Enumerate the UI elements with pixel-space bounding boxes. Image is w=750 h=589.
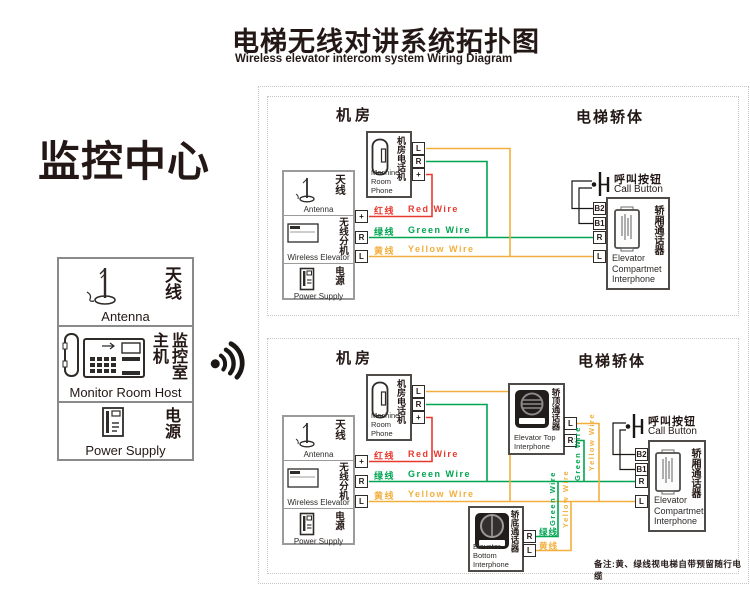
system2-interphone-terminal-l: L: [635, 495, 648, 508]
antenna-icon: [293, 419, 319, 449]
system1-interphone-terminal-l: L: [593, 250, 606, 263]
power-supply-icon: [299, 267, 315, 291]
system1-interphone-terminal-b1: B1: [593, 217, 606, 230]
system2-interphone-terminal-r: R: [635, 475, 648, 488]
system1-phone-terminal-r: R: [412, 155, 425, 168]
system1-elevator-car-label: 电梯轿体: [576, 106, 644, 127]
top-interphone-label-cn: 轿顶通话器: [550, 388, 560, 431]
bottom-interphone-label-en-1: Elevator Bottom: [473, 542, 522, 560]
system1-equipment-box: 天线 Antenna 无线分机 Wireless Elevator 电源 Pow…: [282, 170, 355, 300]
system2-wireless-terminal-l: L: [355, 495, 368, 508]
bottom-interphone-label-en-2: Interphone: [473, 560, 522, 569]
power-label-cn: 电源: [332, 511, 343, 530]
compartment-label-en-2: Compartmet: [612, 264, 662, 275]
system1-power-cell: 电源 Power Supply: [284, 263, 353, 302]
system1-compartment-interphone-box: 轿厢通话器 Elevator Compartmet Interphone: [606, 197, 670, 290]
bottom-interphone-terminal-r: R: [523, 530, 536, 543]
system1-red-wire-label: 红线Red Wire: [374, 204, 459, 217]
system1-phone-terminal-l: L: [412, 142, 425, 155]
power-supply-icon: [299, 512, 315, 536]
top-interphone-label-en-2: Interphone: [514, 442, 556, 451]
monitor-power-cell: 电源 Power Supply: [59, 401, 192, 459]
system1-call-button-label-en: Call Button: [614, 184, 663, 195]
system1-interphone-terminal-r: R: [593, 231, 606, 244]
system2-machine-room-phone-box: 机房电话机 Machine Room Phone: [366, 374, 412, 441]
compartment-label-en-3: Interphone: [612, 274, 662, 285]
system2-power-cell: 电源 Power Supply: [284, 508, 353, 547]
top-interphone-label-en-1: Elevator Top: [514, 433, 556, 442]
elevator-bottom-interphone-box: 轿底通话器 Elevator Bottom Interphone: [468, 506, 524, 572]
green-wire-vertical-label-1: Green Wire: [573, 426, 582, 481]
system2-antenna-cell: 天线 Antenna: [284, 417, 353, 460]
speaker-interphone-icon: [514, 389, 550, 429]
power-label-cn: 电源: [332, 266, 343, 285]
system2-wireless-terminal-plus: +: [355, 455, 368, 468]
system2-wireless-cell: 无线分机 Wireless Elevator: [284, 460, 353, 508]
power-label-en: Power Supply: [284, 537, 353, 546]
wireless-unit-icon: [287, 467, 319, 489]
monitor-host-label-en: Monitor Room Host: [59, 385, 192, 400]
monitor-power-label-en: Power Supply: [59, 443, 192, 458]
wireless-label-en: Wireless Elevator: [284, 498, 353, 507]
system2-yellow-wire-label: 黄线Yellow Wire: [374, 489, 474, 502]
system2-interphone-terminal-b2: B2: [635, 448, 648, 461]
interphone-icon: [613, 206, 641, 252]
wiring-diagram-page: 电梯无线对讲系统拓扑图 Wireless elevator intercom s…: [0, 0, 750, 589]
wireless-label-cn: 无线分机: [336, 217, 347, 255]
compartment-label-cn: 轿厢通话器: [689, 448, 700, 498]
system1-antenna-cell: 天线 Antenna: [284, 172, 353, 215]
power-label-en: Power Supply: [284, 292, 353, 301]
antenna-label-en: Antenna: [284, 205, 353, 214]
bottom-green-wire-label: 绿线: [539, 526, 558, 538]
system1-phone-terminal-plus: +: [412, 168, 425, 181]
system1-machine-room-label: 机房: [336, 104, 374, 125]
antenna-label-en: Antenna: [284, 450, 353, 459]
system2-equipment-box: 天线 Antenna 无线分机 Wireless Elevator 电源 Pow…: [282, 415, 355, 545]
system2-red-wire-label: 红线Red Wire: [374, 449, 459, 462]
compartment-label-cn: 轿厢通话器: [652, 205, 663, 255]
monitor-antenna-cell: 天线 Antenna: [59, 259, 192, 325]
monitor-center-title: 监控中心: [38, 128, 210, 189]
system1-wireless-terminal-r: R: [355, 231, 368, 244]
green-wire-vertical-label-2: Green Wire: [548, 471, 557, 526]
footnote: 备注:黄、绿线视电梯自带预留随行电缆: [594, 558, 750, 582]
system1-wireless-cell: 无线分机 Wireless Elevator: [284, 215, 353, 263]
system1-wireless-terminal-l: L: [355, 250, 368, 263]
wireless-label-cn: 无线分机: [336, 462, 347, 500]
system2-wireless-terminal-r: R: [355, 475, 368, 488]
antenna-label-cn: 天线: [333, 419, 345, 440]
system2-call-button-label-en: Call Button: [648, 426, 697, 437]
machine-phone-label-en-1: Machine: [371, 411, 410, 420]
monitor-host-label-cn: 监控室主机: [149, 332, 187, 388]
elevator-top-interphone-box: 轿顶通话器 Elevator Top Interphone: [508, 383, 565, 455]
system2-phone-terminal-plus: +: [412, 411, 425, 424]
compartment-label-en-1: Elevator: [612, 253, 662, 264]
system1-green-wire-label: 绿线Green Wire: [374, 225, 471, 238]
system1-interphone-terminal-b2: B2: [593, 202, 606, 215]
antenna-icon: [293, 174, 319, 204]
desk-phone-icon: [62, 331, 148, 379]
system2-compartment-interphone-box: 轿厢通话器 Elevator Compartmet Interphone: [648, 440, 706, 532]
system1-wireless-terminal-plus: +: [355, 210, 368, 223]
wireless-unit-icon: [287, 222, 319, 244]
machine-phone-label-en-2: Room Phone: [371, 420, 410, 438]
antenna-label-cn: 天线: [333, 174, 345, 195]
antenna-icon: [81, 262, 125, 308]
wireless-signal-icon: [206, 336, 256, 386]
machine-phone-label-en-2: Room Phone: [371, 177, 410, 195]
system2-machine-room-label: 机房: [336, 347, 374, 368]
wireless-label-en: Wireless Elevator: [284, 253, 353, 262]
yellow-wire-vertical-label-2: Yellow Wire: [561, 470, 570, 528]
machine-phone-label-en-1: Machine: [371, 168, 410, 177]
system1-machine-room-phone-box: 机房电话机 Machine Room Phone: [366, 131, 412, 198]
compartment-label-en-1: Elevator: [654, 495, 704, 506]
system2-green-wire-label: 绿线Green Wire: [374, 469, 471, 482]
system1-yellow-wire-label: 黄线Yellow Wire: [374, 244, 474, 257]
interphone-icon: [654, 449, 682, 495]
monitor-center-box: 天线 Antenna 监控室主机 Monitor Room Host: [57, 257, 194, 461]
page-subtitle: Wireless elevator intercom system Wiring…: [235, 53, 512, 65]
monitor-antenna-label-cn: 天线: [162, 266, 181, 300]
compartment-label-en-3: Interphone: [654, 516, 704, 527]
system2-phone-terminal-r: R: [412, 398, 425, 411]
yellow-wire-vertical-label-1: Yellow Wire: [587, 413, 596, 471]
monitor-power-label-cn: 电源: [161, 407, 179, 439]
power-supply-icon: [101, 406, 125, 438]
monitor-host-cell: 监控室主机 Monitor Room Host: [59, 325, 192, 401]
system2-elevator-car-label: 电梯轿体: [578, 350, 646, 371]
monitor-antenna-label-en: Antenna: [59, 309, 192, 324]
system2-phone-terminal-l: L: [412, 385, 425, 398]
bottom-yellow-wire-label: 黄线: [539, 540, 558, 552]
compartment-label-en-2: Compartmet: [654, 506, 704, 517]
bottom-interphone-terminal-l: L: [523, 544, 536, 557]
